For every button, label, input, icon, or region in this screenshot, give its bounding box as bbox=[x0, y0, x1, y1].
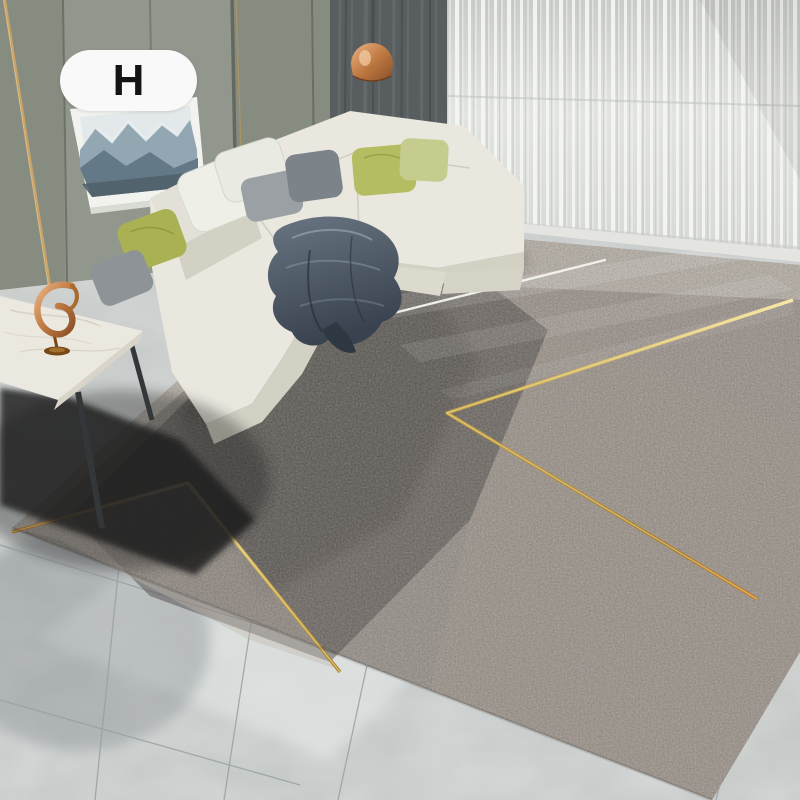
lamp-highlight bbox=[359, 50, 371, 66]
scene-canvas bbox=[0, 0, 800, 800]
chaise-base-right bbox=[442, 268, 524, 294]
pillow-gray-dark bbox=[284, 148, 344, 203]
variant-badge-label: H bbox=[113, 59, 145, 103]
pillow-green-pale bbox=[399, 138, 449, 182]
sculpture-base-highlight bbox=[49, 348, 65, 353]
living-room-product-photo: H bbox=[0, 0, 800, 800]
variant-badge: H bbox=[60, 50, 197, 111]
